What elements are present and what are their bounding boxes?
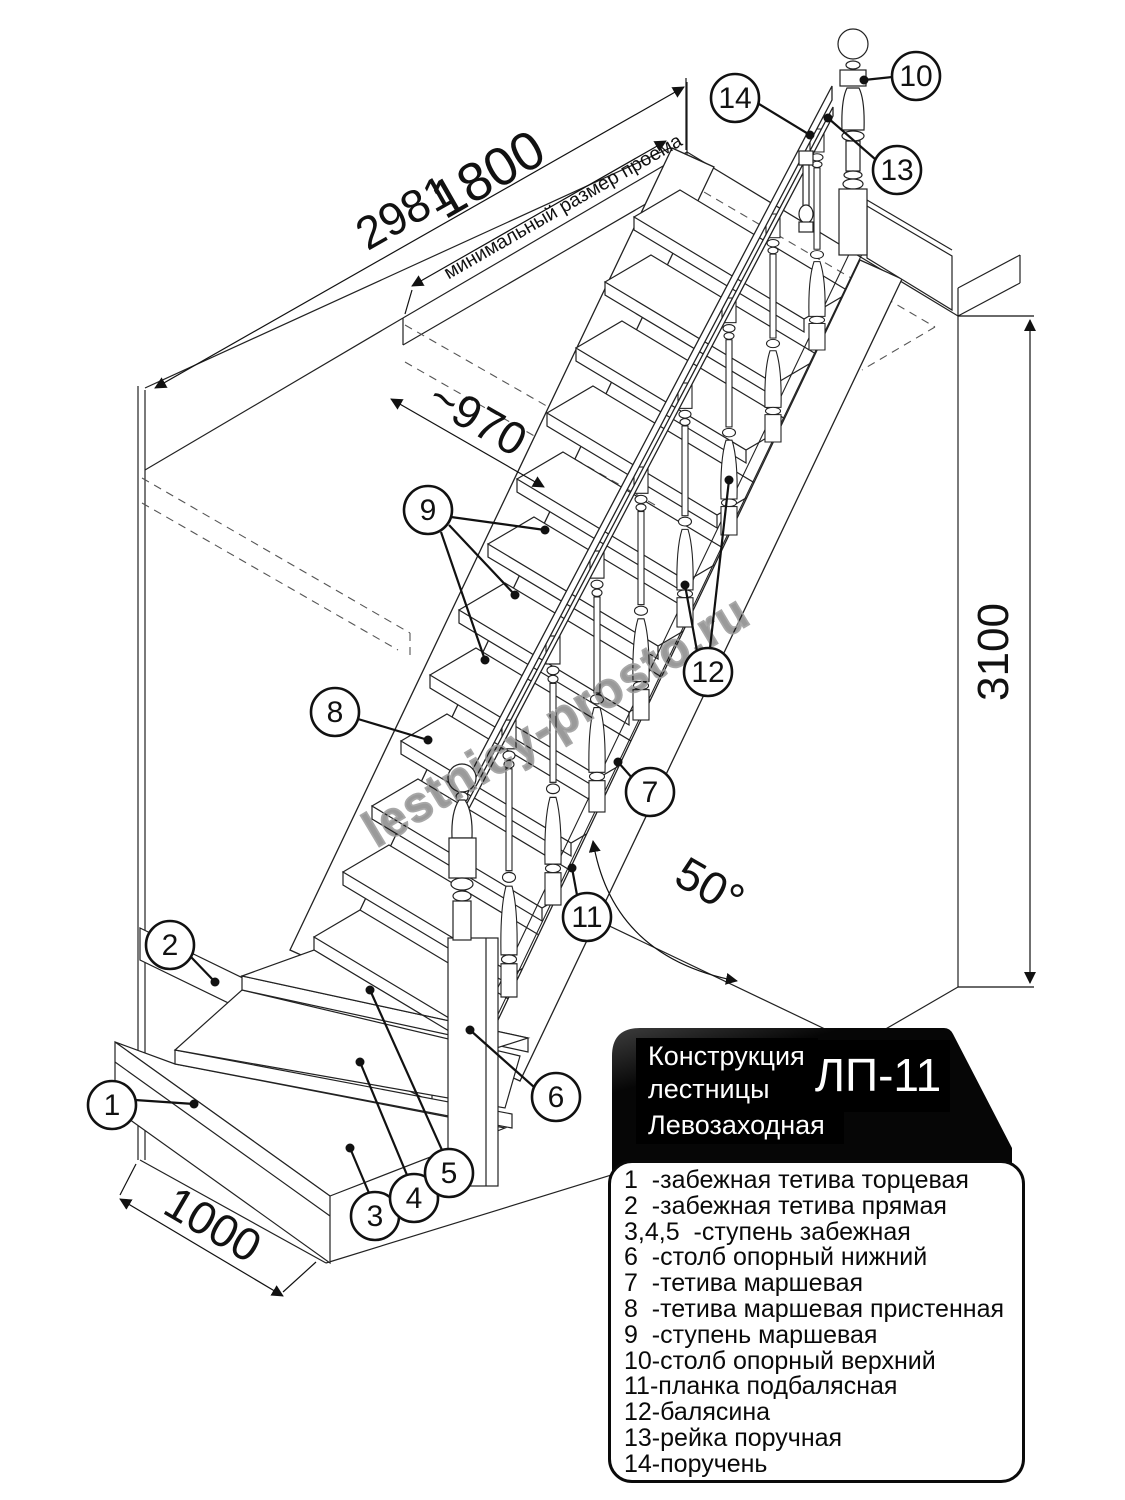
parts-item: 8 -тетива маршевая пристенная [624, 1297, 1022, 1323]
dim-970: ~970 [420, 370, 536, 466]
svg-text:7: 7 [642, 776, 659, 809]
svg-text:2: 2 [162, 929, 179, 962]
parts-item: 6 -столб опорный нижний [624, 1245, 1022, 1271]
svg-text:5: 5 [441, 1157, 458, 1190]
svg-text:11: 11 [571, 901, 602, 934]
svg-text:10: 10 [899, 60, 932, 93]
legend-title-line2: лестницы [648, 1073, 818, 1106]
legend-subtitle: Левозаходная [636, 1108, 844, 1144]
svg-text:12: 12 [691, 656, 724, 689]
parts-item: 14-поручень [624, 1452, 1022, 1478]
parts-item: 1 -забежная тетива торцевая [624, 1168, 1022, 1194]
callout-10: 10 [860, 52, 941, 100]
svg-text:8: 8 [327, 696, 344, 729]
staircase-technical-drawing: 2981 1800 минимальный размер проема ~970… [0, 0, 1125, 1500]
dim-3100: 3100 [969, 603, 1018, 701]
svg-text:9: 9 [420, 494, 437, 527]
parts-item: 2 -забежная тетива прямая [624, 1194, 1022, 1220]
svg-text:3: 3 [367, 1200, 384, 1233]
svg-text:4: 4 [406, 1182, 423, 1215]
legend-title-line1: Конструкция [648, 1040, 818, 1073]
callout-14: 14 [711, 74, 815, 140]
parts-item: 11-планка подбалясная [624, 1374, 1022, 1400]
svg-text:6: 6 [548, 1081, 565, 1114]
dim-angle: 50° [667, 846, 753, 926]
svg-text:1: 1 [104, 1089, 121, 1122]
parts-item: 13-рейка поручная [624, 1426, 1022, 1452]
parts-item: 9 -ступень маршевая [624, 1323, 1022, 1349]
parts-item: 7 -тетива маршевая [624, 1271, 1022, 1297]
svg-text:13: 13 [880, 154, 913, 187]
callout-13: 13 [824, 114, 922, 195]
parts-item: 10-столб опорный верхний [624, 1349, 1022, 1375]
legend-title: Конструкция лестницы [636, 1038, 818, 1110]
legend-model-code: ЛП-11 [806, 1040, 950, 1112]
parts-item: 12-балясина [624, 1400, 1022, 1426]
parts-list: 1 -забежная тетива торцевая 2 -забежная … [608, 1160, 1025, 1483]
parts-item: 3,4,5 -ступень забежная [624, 1220, 1022, 1246]
svg-text:14: 14 [718, 82, 751, 115]
